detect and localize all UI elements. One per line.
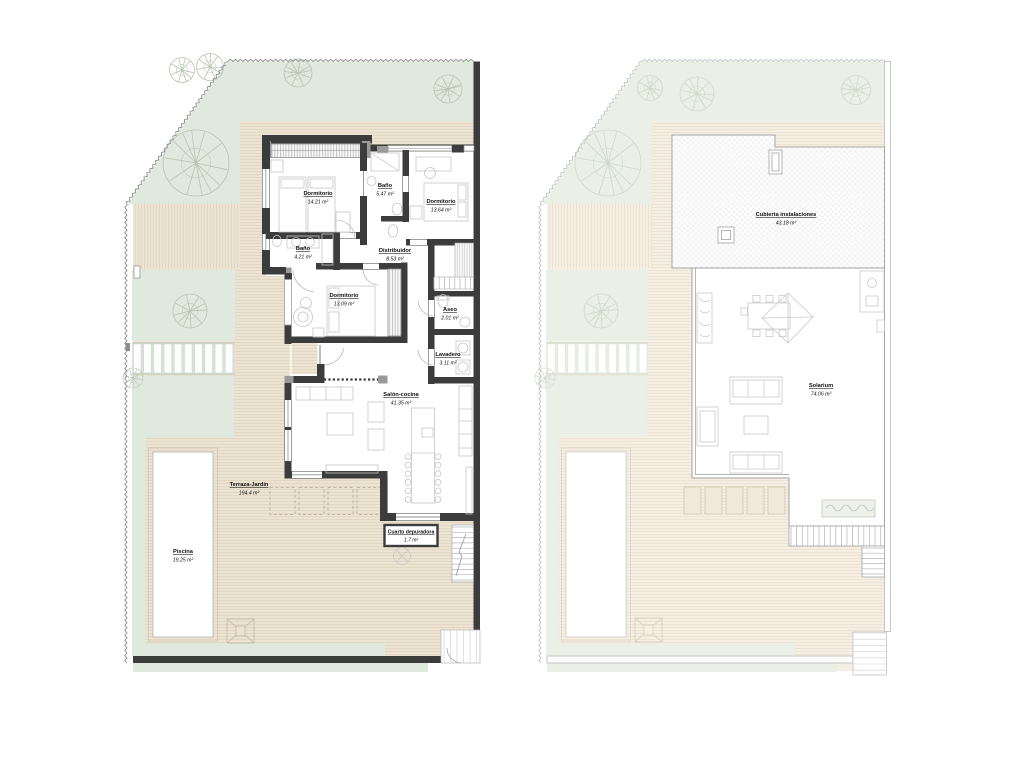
svg-text:Solarium: Solarium [809, 383, 833, 389]
svg-text:Cubierta instalaciones: Cubierta instalaciones [756, 212, 817, 218]
svg-text:43.18 m²: 43.18 m² [776, 221, 797, 227]
svg-text:74.06 m²: 74.06 m² [811, 392, 832, 398]
svg-text:Lavadero: Lavadero [435, 352, 461, 358]
svg-text:3.11 m²: 3.11 m² [439, 361, 456, 367]
svg-text:4.21 m²: 4.21 m² [294, 255, 312, 261]
svg-text:Dormitorio: Dormitorio [303, 191, 333, 197]
svg-text:Piscina: Piscina [173, 549, 194, 555]
svg-text:2.01 m²: 2.01 m² [440, 316, 459, 322]
svg-text:Dormitorio: Dormitorio [426, 199, 456, 205]
svg-text:5.47 m²: 5.47 m² [376, 192, 394, 198]
svg-text:Terraza-Jardín: Terraza-Jardín [230, 482, 269, 488]
svg-text:13.64 m²: 13.64 m² [431, 208, 452, 214]
svg-text:Dormitorio: Dormitorio [329, 293, 359, 299]
svg-text:Distribuidor: Distribuidor [379, 248, 412, 254]
svg-text:41.35 m²: 41.35 m² [391, 401, 412, 407]
svg-text:8.53 m²: 8.53 m² [386, 257, 404, 263]
svg-text:19.25 m²: 19.25 m² [173, 558, 194, 564]
svg-text:1.7 m²: 1.7 m² [404, 538, 419, 544]
svg-text:Baño: Baño [296, 246, 311, 252]
svg-text:14.21 m²: 14.21 m² [308, 200, 329, 206]
svg-text:Baño: Baño [378, 183, 393, 189]
svg-text:Cuarto depuradora: Cuarto depuradora [388, 530, 435, 536]
svg-text:Aseo: Aseo [443, 307, 457, 313]
svg-text:Salón-cocina: Salón-cocina [383, 392, 419, 398]
svg-text:194.4 m²: 194.4 m² [239, 491, 260, 497]
svg-text:13.09 m²: 13.09 m² [334, 302, 355, 308]
